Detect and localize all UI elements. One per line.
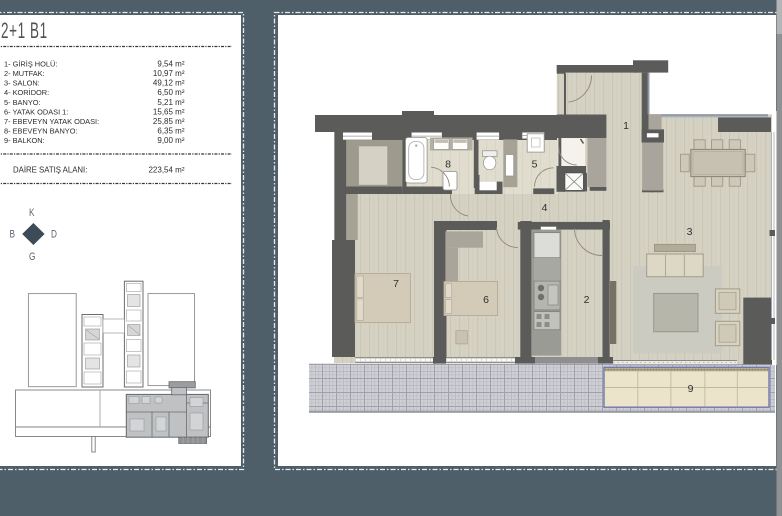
svg-text:9: 9 bbox=[688, 383, 694, 395]
svg-text:2- MUTFAK:: 2- MUTFAK: bbox=[4, 69, 45, 78]
svg-text:6- YATAK ODASI 1:: 6- YATAK ODASI 1: bbox=[4, 107, 68, 116]
svg-text:3- SALON:: 3- SALON: bbox=[4, 79, 40, 88]
svg-text:7: 7 bbox=[393, 278, 399, 290]
svg-text:D: D bbox=[51, 228, 57, 240]
svg-text:9- BALKON:: 9- BALKON: bbox=[4, 136, 45, 145]
svg-text:6,35 m²: 6,35 m² bbox=[157, 127, 184, 136]
svg-text:8: 8 bbox=[445, 159, 451, 171]
svg-text:9,54 m²: 9,54 m² bbox=[157, 60, 184, 69]
svg-text:223,54 m²: 223,54 m² bbox=[148, 166, 184, 175]
svg-text:5,21 m²: 5,21 m² bbox=[157, 98, 184, 107]
svg-text:7- EBEVEYN YATAK ODASI:: 7- EBEVEYN YATAK ODASI: bbox=[4, 117, 99, 126]
svg-text:8- EBEVEYN BANYO:: 8- EBEVEYN BANYO: bbox=[4, 127, 78, 136]
svg-text:6: 6 bbox=[483, 294, 489, 306]
svg-text:2: 2 bbox=[584, 294, 590, 306]
svg-text:25,85 m²: 25,85 m² bbox=[153, 117, 185, 126]
svg-text:10,97 m²: 10,97 m² bbox=[153, 69, 185, 78]
svg-text:1: 1 bbox=[623, 120, 629, 132]
svg-text:5- BANYO:: 5- BANYO: bbox=[4, 98, 41, 107]
svg-text:6,50 m²: 6,50 m² bbox=[157, 88, 184, 97]
svg-text:3: 3 bbox=[687, 226, 693, 238]
svg-text:K: K bbox=[29, 207, 35, 219]
svg-text:2+1 B1: 2+1 B1 bbox=[1, 17, 48, 42]
svg-text:4: 4 bbox=[542, 202, 548, 214]
svg-text:4- KORİDOR:: 4- KORİDOR: bbox=[4, 88, 49, 97]
svg-text:B: B bbox=[10, 228, 16, 240]
svg-text:G: G bbox=[29, 251, 35, 263]
svg-text:1- GİRİŞ HOLÜ:: 1- GİRİŞ HOLÜ: bbox=[4, 60, 57, 69]
svg-text:5: 5 bbox=[532, 159, 538, 171]
svg-text:49,12 m²: 49,12 m² bbox=[153, 79, 185, 88]
svg-text:DAİRE SATIŞ ALANI:: DAİRE SATIŞ ALANI: bbox=[13, 166, 87, 175]
svg-text:15,65 m²: 15,65 m² bbox=[153, 107, 185, 116]
svg-text:9,00 m²: 9,00 m² bbox=[157, 136, 184, 145]
